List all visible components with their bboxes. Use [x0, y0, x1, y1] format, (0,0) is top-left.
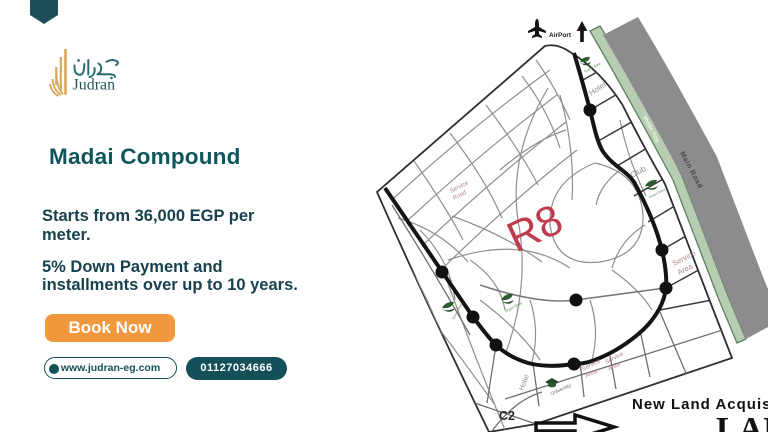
svg-text:LAF: LAF	[716, 411, 768, 432]
svg-text:C2: C2	[499, 409, 515, 423]
svg-text:AirPort: AirPort	[549, 32, 572, 39]
